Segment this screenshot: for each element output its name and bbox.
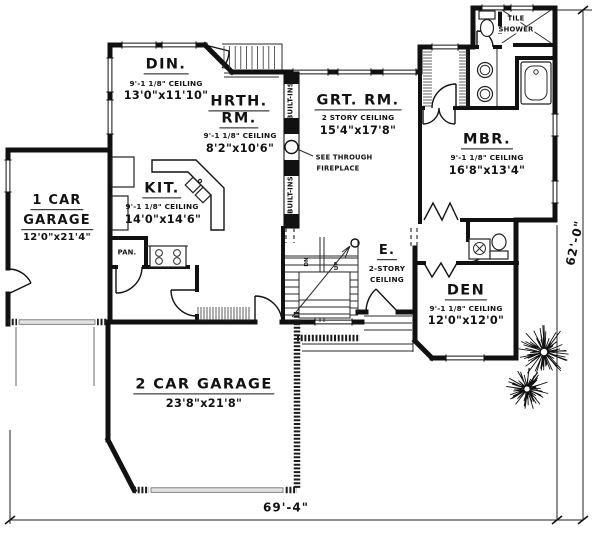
room-label-garage1: 1 CAR [30,194,83,210]
built-ins-label: BUILT-INS [287,82,294,120]
powder-toilet-bowl [492,234,506,250]
garage1-service-door [8,269,31,294]
stairs [285,237,359,322]
room-label-great-room: GRT. RM. [315,93,402,110]
mbr-double-doors [423,108,455,124]
fireplace-note-2: FIREPLACE [316,165,359,172]
room-ceiling-kitchen: 9'-1 1/8" CEILING [125,203,198,211]
room-label-hearth: HRTH. [208,94,269,111]
room-dims-master: 16'8"x13'4" [449,165,525,177]
floor-plan: DIN. 9'-1 1/8" CEILING 13'0"x11'10" HRTH… [0,0,600,542]
pantry-label: PAN. [118,249,137,256]
refrigerator [112,157,134,187]
fireplace-note: SEE THROUGH [316,154,373,161]
room-dims-great-room: 15'4"x17'8" [320,125,396,137]
room-label-kitchen: KIT. [142,181,181,198]
room-label-dining: DIN. [144,57,189,74]
floor-plan-drawing [0,0,600,542]
pantry-door [116,267,142,293]
garage2-door [151,488,283,493]
toilet [479,11,495,37]
stair-up-label: UP [335,262,341,271]
garage2-entry-door [255,296,282,322]
built-ins-label-2: BUILT-INS [287,176,294,214]
room-ceiling-dining: 9'-1 1/8" CEILING [129,80,202,88]
tile-shower-label-2: SHOWER [498,26,535,33]
room-label-master: MBR. [461,132,513,149]
room-label-garage2: 2 CAR GARAGE [133,377,274,394]
room-ceiling-great-room: 2 STORY CEILING [322,114,395,122]
powder-room-fixtures [469,234,508,259]
room-label-garage1-2: GARAGE [21,214,93,230]
den-bifold-doors [424,263,457,277]
stair-down-label: DN [305,257,311,266]
room-ceiling-den: 9'-1 1/8" CEILING [429,305,502,313]
room-ceiling-hearth: 9'-1 1/8" CEILING [203,132,276,140]
room-dims-garage2: 23'8"x21'8" [166,398,242,410]
mbr-bifold-doors [424,203,458,220]
tile-shower-label: TILE [507,15,526,22]
room-label-hearth-2: RM. [219,111,258,128]
room-dims-dining: 13'0"x11'10" [124,90,209,102]
tub [521,62,551,104]
driveway-lines [16,327,94,386]
closet-door [432,84,456,108]
room-ceiling-entry: 2-STORY [369,265,405,273]
garage1-door [19,320,95,325]
vanity-sinks [478,63,493,102]
overall-width-dimension: 69'-4" [263,502,309,515]
room-ceiling-entry-2: CEILING [370,276,404,284]
room-dims-garage1: 12'0"x21'4" [23,233,91,244]
range [150,246,186,267]
room-dims-kitchen: 14'0"x14'6" [125,214,201,226]
room-dims-den: 12'0"x12'0" [428,315,504,327]
hall-door [171,290,197,316]
room-dims-hearth: 8'2"x10'6" [206,143,274,155]
room-label-den: DEN [445,283,487,300]
front-door [366,289,398,312]
powder-toilet-tank [490,251,508,259]
room-label-entry: E. [377,244,397,260]
room-ceiling-master: 9'-1 1/8" CEILING [450,154,523,162]
